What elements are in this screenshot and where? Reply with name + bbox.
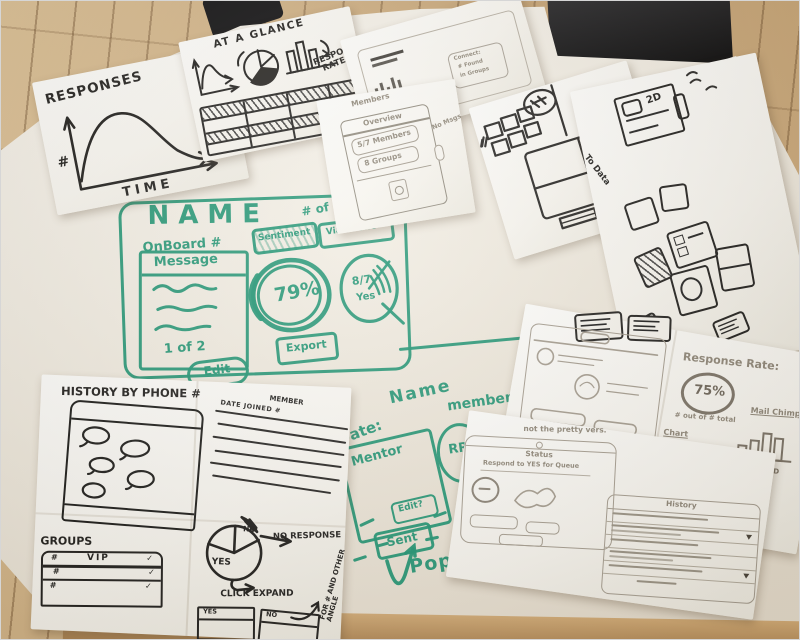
pie-sketch: 8/7 Yes [337,249,406,329]
response-rate-subtitle: # out of # total [674,412,736,425]
overview-card-paper: Members Overview 5/7 Members 8 Groups No… [316,79,475,234]
pretty-version-note: not the pretty vers. [523,425,606,434]
pie-yes-label: YES [210,557,231,568]
member-table-rule-1 [215,410,348,431]
responses-y-label: # [56,153,71,171]
chat-panel [61,399,204,531]
screen-2d-label: 2D [645,92,663,107]
mail-chimp-label: Mail Chimp [750,407,800,419]
row-text-squiggle [612,512,708,521]
thumb-hatched [633,246,674,289]
screen-2d-card: 2D [613,83,686,147]
photo-of-sketches: NAME OnBoard # # of m Message 1 of 2 Edi… [0,0,800,640]
overview-side-tab [433,144,445,162]
thumb-card-a-box2 [677,246,689,258]
vip-row-id: # [51,554,58,562]
overview-icon [388,178,410,201]
no-response-callout: NO RESPONSE [273,531,341,542]
overview-note-right: No Msgs [431,113,462,131]
click-expand-note: CLICK EXPAND [220,590,293,600]
vip-row: # ✓ [43,581,161,594]
vip-row-check: ✓ [148,569,155,577]
message-card-header: Message [153,253,218,270]
gauge-sketch: 79% [247,254,336,337]
row-text-squiggle [637,580,677,585]
history-list-title: History [666,500,697,510]
export-label: Export [285,339,327,355]
yes-option-label: YES [203,608,217,615]
sentiment-label: Sentiment [258,228,311,244]
status-blob [508,478,562,517]
yes-option-box: YES [197,606,255,640]
vip-row: # ✓ [43,553,161,568]
thumb-card-c-midline [720,263,750,270]
empty-square-2 [658,183,689,213]
status-button-1 [470,514,519,529]
export-button-sketch: Export [275,331,340,365]
row-text-squiggle [609,564,703,573]
vip-row-id: # [50,582,57,590]
pie-value: 8/7 [351,273,372,287]
overview-note-top: Members [350,92,390,108]
status-title: Status [525,450,553,459]
response-rate-title: Response Rate: [682,351,779,373]
status-line-rule [480,470,590,477]
mentor-label: Mentor [350,443,404,470]
message-squiggle-lines [144,277,244,343]
thumb-card-b [669,264,719,317]
overview-card: Overview 5/7 Members 8 Groups [339,103,448,221]
vip-row-check: ✓ [146,555,153,563]
history-by-phone-paper: HISTORY BY PHONE # GROUPS VIP # ✓ [31,374,352,640]
row-text-squiggle [610,538,698,546]
history-list-screen: History [601,494,762,604]
message-card: Message 1 of 2 [139,250,249,370]
yes-no-pie: YES NO [192,505,306,600]
screen-2d-inner-box [620,98,643,118]
thumb-card-a [666,220,720,270]
thumbnail-group [633,215,788,328]
groups-label: GROUPS [40,535,92,547]
status-line: Respond to YES for Queue [483,460,579,470]
no-option-label: NO [266,611,278,619]
message-card-header-rule [142,273,246,276]
member-table: MEMBER DATE JOINED # [200,387,355,508]
overview-icon-circle [394,185,405,196]
message-card-page: 1 of 2 [163,340,206,357]
chat-bubbles [65,421,195,508]
expand-caret-icon [743,573,749,578]
history-title: HISTORY BY PHONE # [61,385,201,400]
mentor-edit-box: Edit? [390,493,440,525]
status-circle [471,476,500,503]
status-circle-squiggle [478,488,490,491]
ink-tag-2-scribble [629,317,664,334]
screen-2d-line-2 [629,124,658,134]
dashboard-title: NAME [147,201,269,230]
pie-circle [337,249,406,329]
response-rate-value: 75% [694,384,726,400]
screens-squiggles [680,62,726,104]
status-screen: Status Respond to YES for Queue [460,435,617,551]
tag-box-2-scribble [714,314,743,337]
vip-row: # ✓ [43,567,161,582]
empty-square-1 [623,196,660,232]
vip-row-check: ✓ [145,583,152,591]
vip-row-id: # [53,568,60,576]
overview-groups-stat: 8 Groups [364,152,403,168]
pie-no-label: NO [243,524,256,534]
mentor-edit-label: Edit? [398,500,425,515]
status-button-2 [525,521,560,535]
expand-caret-icon [746,535,752,540]
thumb-card-a-box1 [673,234,685,246]
thumb-card-c [714,243,755,292]
status-bottom-tab [499,534,544,547]
edit-button-label: Edit [203,362,231,378]
thumb-card-b-blob [671,268,711,309]
vip-table: VIP # ✓ # ✓ # ✓ [41,551,163,608]
yes-option-header: YES [199,608,253,620]
response-rate-value-circle: 75% [679,371,736,417]
thumb-card-a-line [688,232,704,239]
